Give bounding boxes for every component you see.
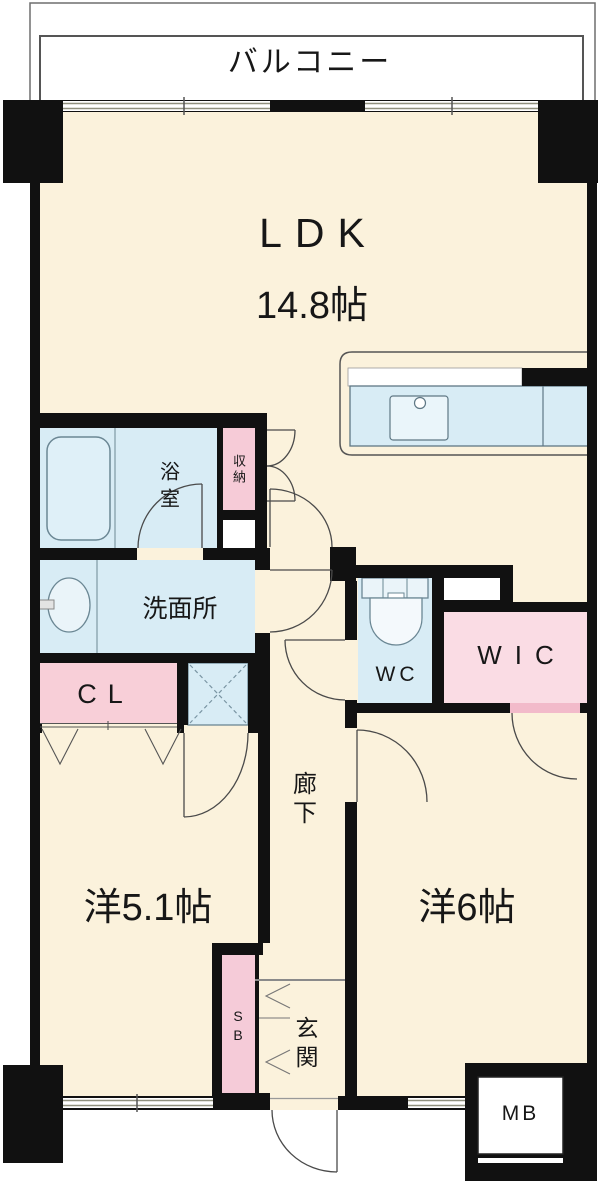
floor-plan-canvas: バルコニー LDK 14.8帖 浴室 収納 洗面所 CL WC WIC 廊下 洋… [0,0,600,1181]
service-box [222,520,255,548]
western-room-5-label: 洋5.1帖 [48,880,248,926]
kitchen-counter-icon [340,352,597,455]
storage-label: 収納 [230,442,247,498]
shoebox-label: SB [229,996,247,1058]
washroom-label: 洗面所 [100,590,260,624]
closet-label: CL [48,676,152,712]
wic-threshold [510,703,580,713]
entrance-label: 玄関 [290,1002,320,1088]
corridor-label: 廊下 [288,756,316,844]
ldk-label: LDK [212,208,412,258]
wic-notch [444,578,500,600]
balcony-label: バルコニー [150,38,470,80]
wic-label: WIC [444,637,587,673]
meter-box-label: MB [478,1100,563,1128]
washing-machine-area-icon [188,663,248,725]
bathtub-icon [47,428,115,548]
ldk-size-label: 14.8帖 [212,278,412,324]
wc-label: WC [358,660,432,690]
bathroom-label: 浴室 [154,448,182,528]
entrance-door-arc [272,1110,337,1172]
western-room-6-label: 洋6帖 [367,880,567,926]
